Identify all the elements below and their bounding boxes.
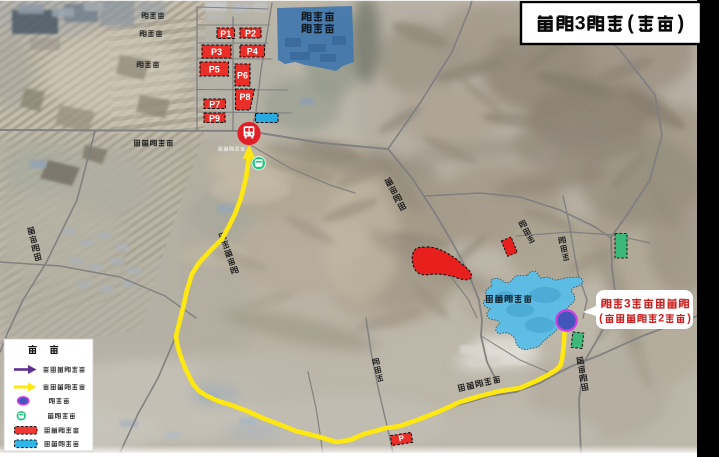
svg-text:2: 2 (658, 313, 664, 325)
svg-text:(: ( (627, 13, 634, 35)
svg-text:(: ( (599, 313, 603, 325)
svg-text:P5: P5 (209, 65, 220, 75)
svg-text:P9: P9 (209, 113, 220, 123)
svg-text:): ) (687, 313, 691, 325)
svg-text:3: 3 (624, 297, 631, 311)
svg-text:): ) (677, 13, 684, 35)
svg-text:P7: P7 (209, 99, 220, 109)
svg-text:P4: P4 (247, 47, 258, 57)
svg-text:P2: P2 (245, 29, 256, 39)
svg-text:P1: P1 (220, 29, 231, 39)
svg-text:3: 3 (575, 13, 586, 35)
svg-text:P6: P6 (237, 71, 248, 81)
svg-text:P3: P3 (211, 47, 222, 57)
svg-text:P8: P8 (239, 92, 250, 102)
